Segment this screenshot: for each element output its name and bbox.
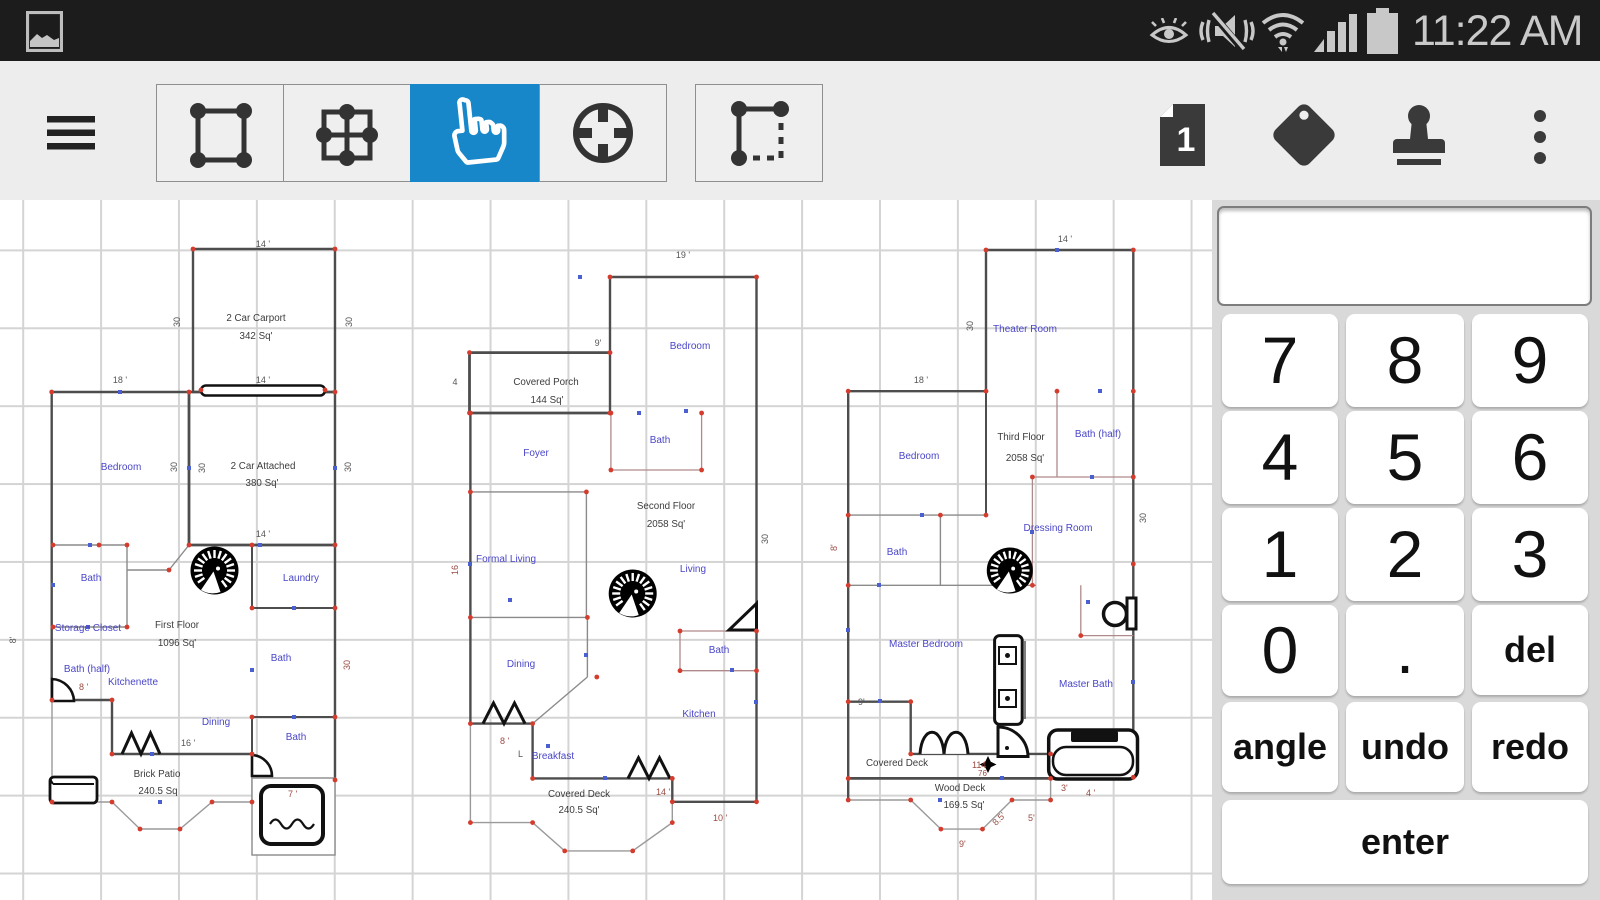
svg-text:30: 30	[343, 462, 353, 472]
svg-text:9': 9'	[959, 839, 966, 849]
svg-text:Bath (half): Bath (half)	[64, 664, 110, 675]
svg-text:14 ': 14 '	[1058, 234, 1073, 244]
svg-text:144 Sq': 144 Sq'	[531, 395, 564, 406]
svg-text:8': 8'	[8, 636, 18, 643]
svg-text:8 ': 8 '	[500, 736, 510, 746]
svg-text:Third Floor: Third Floor	[997, 432, 1045, 443]
svg-text:Foyer: Foyer	[523, 448, 549, 459]
svg-text:14 ': 14 '	[656, 787, 671, 797]
svg-text:2058 Sq': 2058 Sq'	[1006, 453, 1044, 464]
svg-text:Dressing Room: Dressing Room	[1024, 523, 1093, 534]
svg-text:Bedroom: Bedroom	[899, 451, 940, 462]
svg-text:16: 16	[450, 565, 460, 575]
svg-text:Bath: Bath	[709, 645, 730, 656]
svg-text:30: 30	[197, 463, 207, 473]
svg-text:Bath: Bath	[286, 732, 307, 743]
svg-text:30: 30	[342, 660, 352, 670]
svg-text:16 ': 16 '	[181, 738, 196, 748]
svg-text:10 ': 10 '	[713, 813, 728, 823]
svg-text:Theater Room: Theater Room	[993, 324, 1057, 335]
svg-text:342 Sq': 342 Sq'	[240, 331, 273, 342]
svg-text:8.5': 8.5'	[990, 810, 1007, 827]
svg-text:14 ': 14 '	[256, 529, 271, 539]
svg-text:Master Bath: Master Bath	[1059, 679, 1113, 690]
svg-text:30: 30	[344, 317, 354, 327]
svg-text:8 ': 8 '	[79, 682, 89, 692]
svg-text:18 ': 18 '	[113, 375, 128, 385]
svg-text:7 ': 7 '	[288, 789, 298, 799]
svg-text:Covered Deck: Covered Deck	[866, 758, 928, 769]
svg-text:Bath (half): Bath (half)	[1075, 429, 1121, 440]
svg-text:Laundry: Laundry	[283, 573, 319, 584]
svg-text:19 ': 19 '	[676, 250, 691, 260]
svg-text:Wood Deck: Wood Deck	[935, 783, 986, 794]
svg-text:240.5 Sq: 240.5 Sq	[138, 786, 177, 797]
svg-text:2 Car Carport: 2 Car Carport	[226, 313, 286, 324]
svg-text:Formal Living: Formal Living	[476, 554, 536, 565]
svg-text:Dining: Dining	[507, 659, 535, 670]
svg-text:Bath: Bath	[650, 435, 671, 446]
svg-text:8': 8'	[829, 544, 839, 551]
svg-text:Master Bedroom: Master Bedroom	[889, 639, 963, 650]
svg-text:Dining: Dining	[202, 717, 230, 728]
svg-text:9': 9'	[595, 338, 602, 348]
svg-text:Kitchen: Kitchen	[682, 709, 715, 720]
svg-text:30: 30	[965, 321, 975, 331]
svg-text:9': 9'	[858, 697, 865, 707]
svg-text:Living: Living	[680, 564, 706, 575]
svg-text:30: 30	[760, 534, 770, 544]
svg-text:4 ': 4 '	[1086, 788, 1096, 798]
svg-text:Storage Closet: Storage Closet	[55, 623, 121, 634]
svg-text:240.5 Sq': 240.5 Sq'	[558, 805, 599, 816]
svg-text:4: 4	[452, 377, 457, 387]
svg-text:2 Car Attached: 2 Car Attached	[231, 461, 296, 472]
svg-text:18 ': 18 '	[914, 375, 929, 385]
svg-text:30: 30	[1138, 513, 1148, 523]
svg-text:Bath: Bath	[887, 547, 908, 558]
svg-text:Covered Deck: Covered Deck	[548, 789, 610, 800]
svg-text:2058 Sq': 2058 Sq'	[647, 519, 685, 530]
svg-text:380 Sq': 380 Sq'	[246, 478, 279, 489]
svg-text:L: L	[518, 749, 523, 759]
svg-text:Second Floor: Second Floor	[637, 501, 696, 512]
svg-text:First Floor: First Floor	[155, 620, 200, 631]
svg-text:Covered Porch: Covered Porch	[513, 377, 578, 388]
svg-text:Bath: Bath	[81, 573, 102, 584]
svg-text:Bedroom: Bedroom	[101, 462, 142, 473]
svg-text:Kitchenette: Kitchenette	[108, 677, 158, 688]
svg-text:30: 30	[172, 317, 182, 327]
svg-text:Bedroom: Bedroom	[670, 341, 711, 352]
svg-text:1: 1	[1177, 121, 1196, 159]
svg-text:14 ': 14 '	[256, 375, 271, 385]
svg-text:14 ': 14 '	[256, 239, 271, 249]
svg-text:76: 76	[978, 769, 987, 778]
svg-text:Bath: Bath	[271, 653, 292, 664]
svg-text:5': 5'	[1028, 813, 1035, 823]
svg-text:1096 Sq': 1096 Sq'	[158, 638, 196, 649]
svg-text:3': 3'	[1061, 783, 1068, 793]
svg-text:Breakfast: Breakfast	[532, 751, 574, 762]
svg-text:Brick Patio: Brick Patio	[134, 769, 181, 780]
svg-text:169.5 Sq': 169.5 Sq'	[943, 800, 984, 811]
svg-text:30: 30	[169, 462, 179, 472]
